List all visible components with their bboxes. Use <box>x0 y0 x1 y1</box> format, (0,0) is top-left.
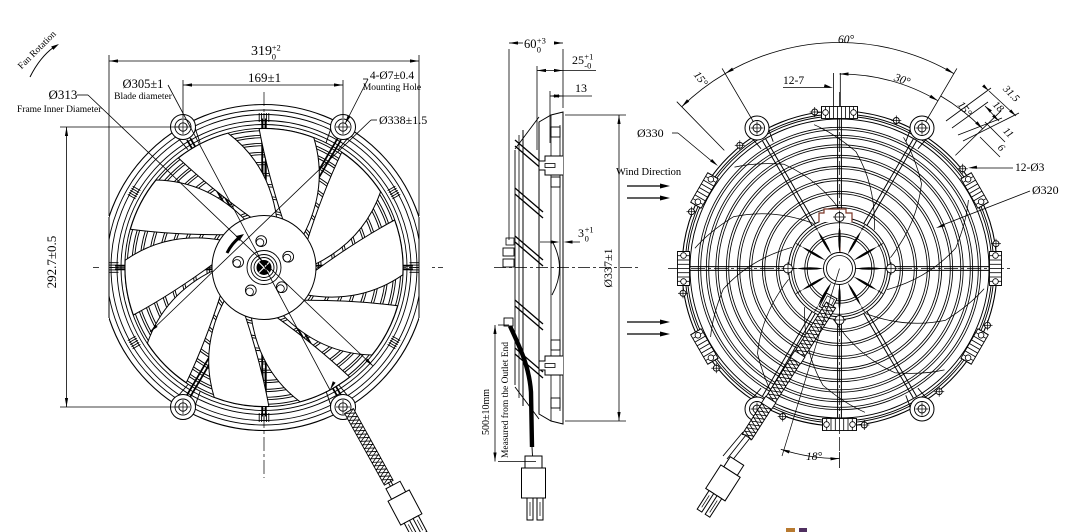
svg-text:3: 3 <box>578 226 584 240</box>
svg-text:60: 60 <box>524 37 537 51</box>
svg-text:169±1: 169±1 <box>248 70 281 85</box>
svg-text:0: 0 <box>272 52 276 62</box>
svg-text:Ø338±1.5: Ø338±1.5 <box>379 113 427 127</box>
svg-text:13: 13 <box>575 81 587 95</box>
svg-text:Ø313: Ø313 <box>49 87 78 102</box>
svg-text:4-Ø7±0.4: 4-Ø7±0.4 <box>370 70 415 82</box>
svg-text:0: 0 <box>537 45 541 55</box>
svg-text:0: 0 <box>585 234 589 244</box>
svg-text:Ø320: Ø320 <box>1032 183 1059 197</box>
svg-text:Measured from the Outlet End: Measured from the Outlet End <box>500 342 511 458</box>
svg-text:Frame Inner Diameter: Frame Inner Diameter <box>17 105 102 115</box>
svg-text:-0: -0 <box>584 61 591 71</box>
svg-text:25: 25 <box>572 53 584 67</box>
svg-text:12-Ø3: 12-Ø3 <box>1015 162 1045 174</box>
svg-text:Blade diameter: Blade diameter <box>114 92 173 102</box>
svg-text:500±10mm: 500±10mm <box>481 389 492 435</box>
svg-text:12-7: 12-7 <box>783 75 804 87</box>
svg-text:Wind Direction: Wind Direction <box>616 167 682 178</box>
svg-text:319: 319 <box>251 44 272 59</box>
svg-text:60°: 60° <box>838 34 855 46</box>
svg-text:Ø305±1: Ø305±1 <box>123 77 164 91</box>
svg-text:Ø337±1: Ø337±1 <box>601 248 615 287</box>
svg-text:292.7±0.5: 292.7±0.5 <box>44 236 59 289</box>
svg-text:Ø330: Ø330 <box>637 126 664 140</box>
svg-text:Mounting Hole: Mounting Hole <box>363 83 421 93</box>
svg-text:18°: 18° <box>806 451 823 463</box>
